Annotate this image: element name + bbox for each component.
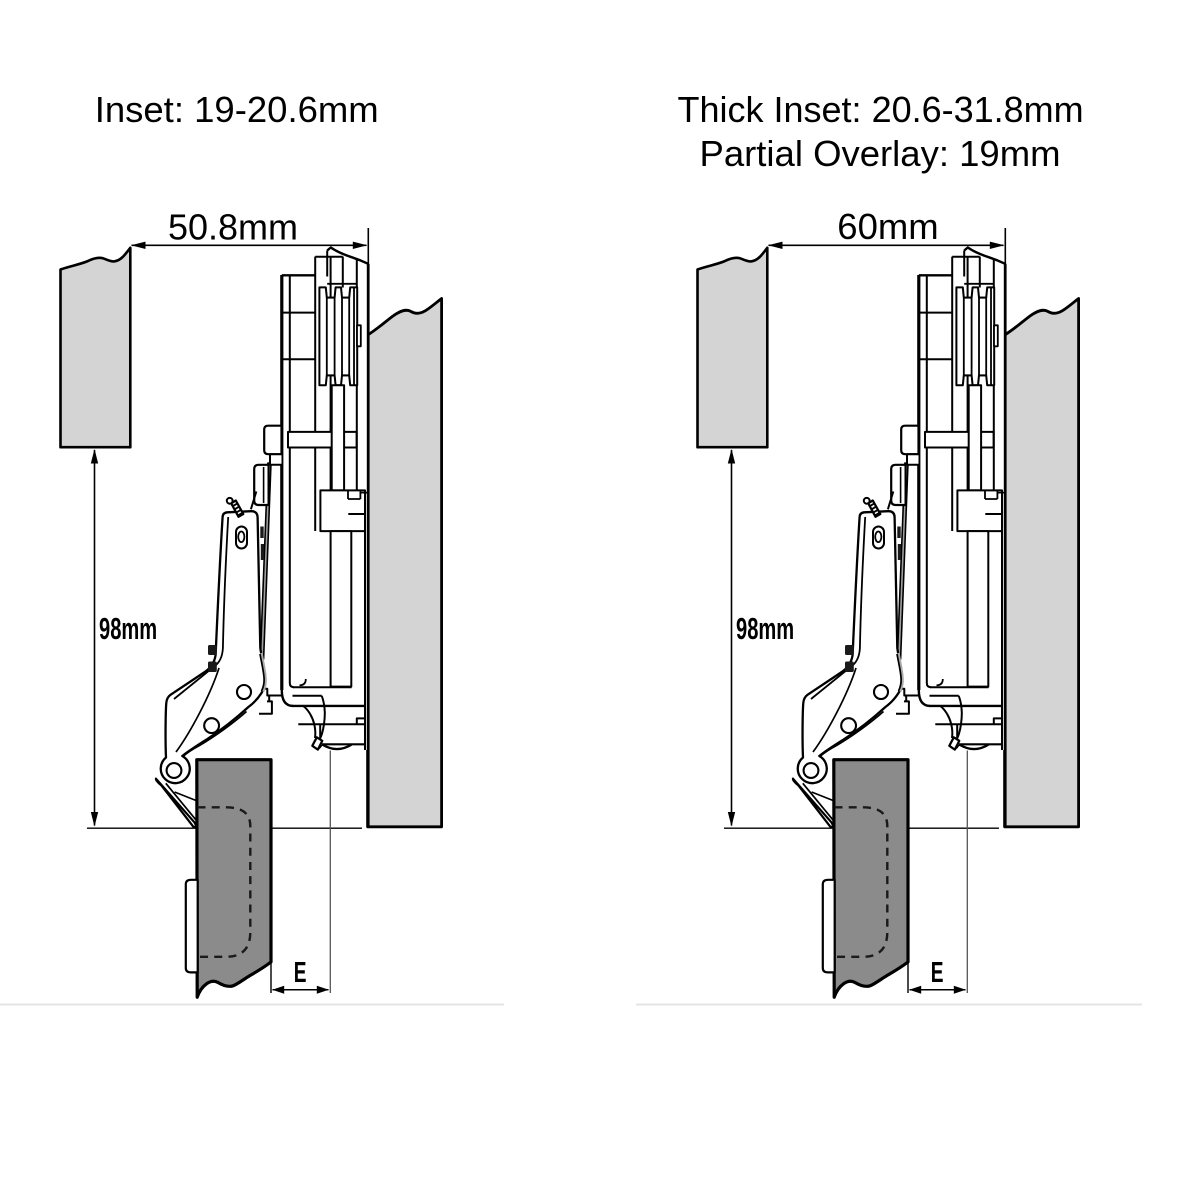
svg-text:50.8mm: 50.8mm — [168, 207, 298, 248]
svg-text:Thick Inset: 20.6-31.8mm: Thick Inset: 20.6-31.8mm — [678, 89, 1084, 130]
svg-text:60mm: 60mm — [837, 206, 938, 247]
svg-text:Partial Overlay: 19mm: Partial Overlay: 19mm — [699, 133, 1060, 174]
svg-text:Inset: 19-20.6mm: Inset: 19-20.6mm — [95, 89, 379, 130]
